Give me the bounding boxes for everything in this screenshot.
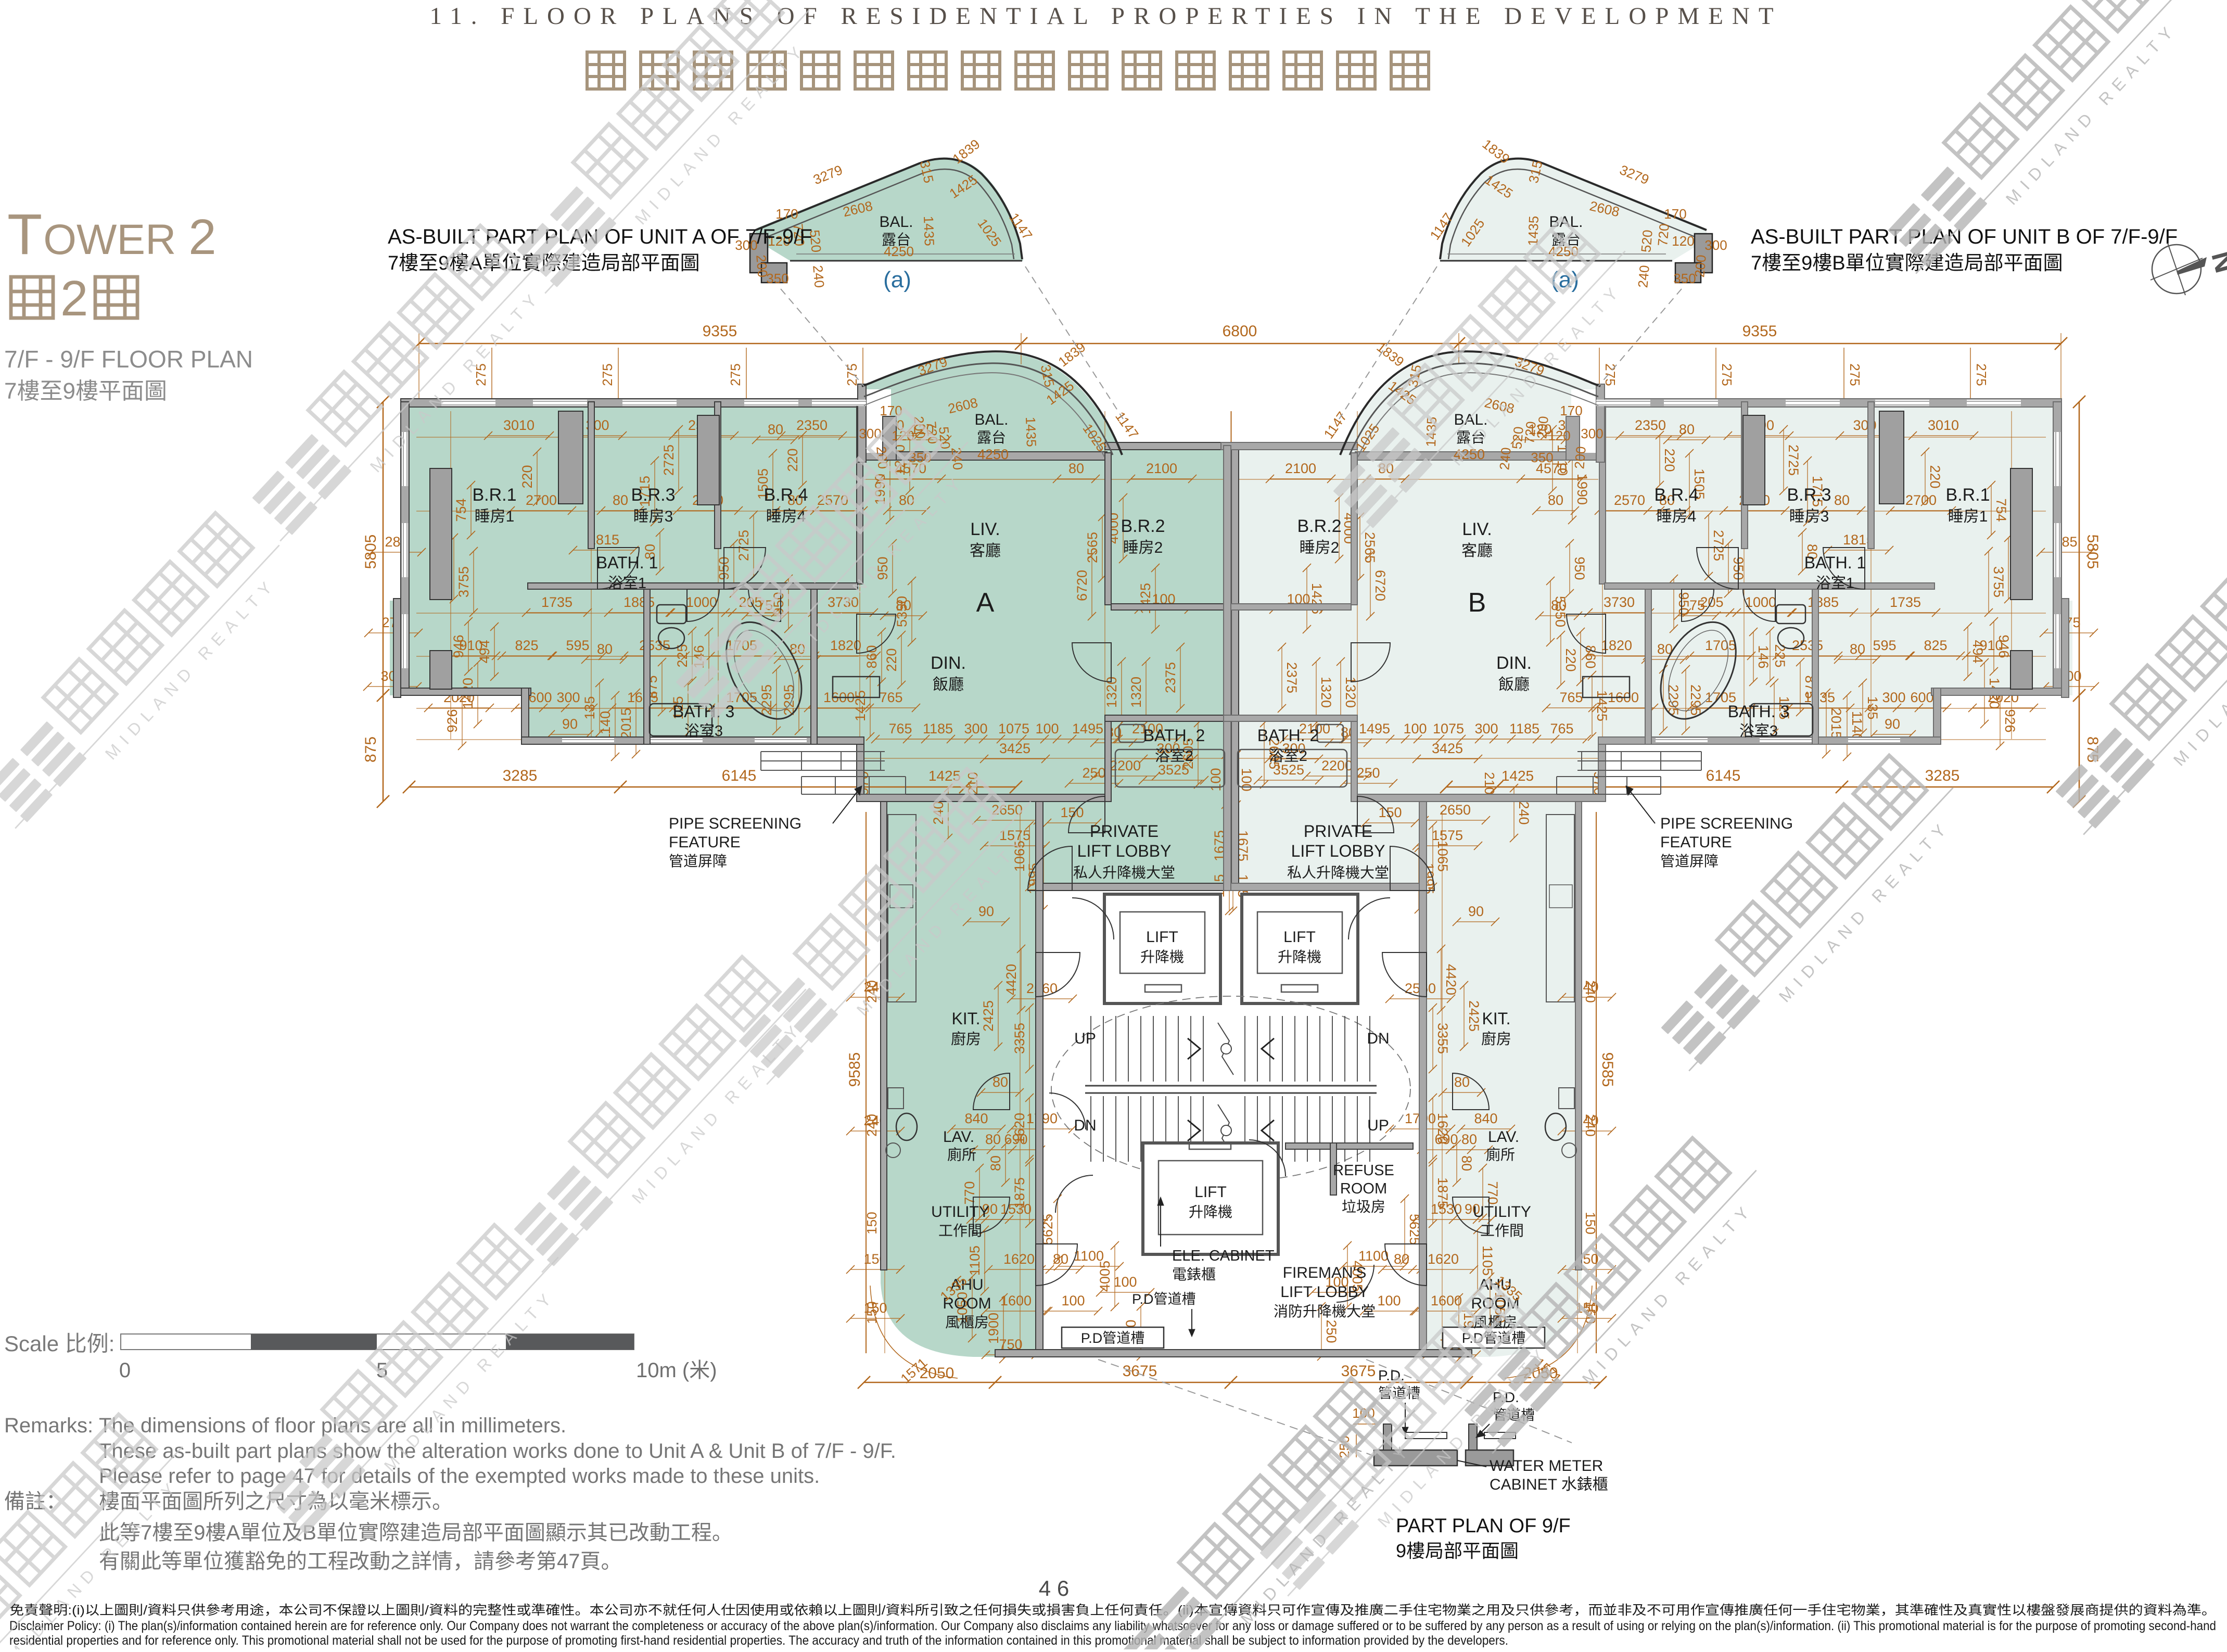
svg-text:950: 950 [1572, 556, 1587, 580]
svg-text:860: 860 [864, 645, 880, 668]
svg-text:有關此等單位獲豁免的工程改動之詳情，請參考第47頁。: 有關此等單位獲豁免的工程改動之詳情，請參考第47頁。 [99, 1550, 622, 1573]
svg-text:3675: 3675 [1341, 1363, 1376, 1380]
svg-text:3285: 3285 [1925, 767, 1960, 784]
svg-text:1620: 1620 [1003, 1251, 1035, 1267]
svg-text:100: 100 [1403, 721, 1427, 736]
svg-text:220: 220 [519, 465, 535, 488]
svg-text:275: 275 [728, 363, 743, 386]
svg-text:275: 275 [1719, 363, 1735, 386]
svg-text:睡房3: 睡房3 [1789, 508, 1829, 525]
svg-text:睡房2: 睡房2 [1123, 539, 1163, 556]
svg-text:REFUSE: REFUSE [1333, 1162, 1394, 1179]
svg-text:工作間: 工作間 [938, 1223, 982, 1239]
svg-text:睡房2: 睡房2 [1300, 539, 1340, 556]
svg-text:1000: 1000 [1745, 594, 1776, 610]
svg-text:1495: 1495 [1072, 721, 1103, 736]
svg-text:875: 875 [362, 736, 379, 763]
svg-text:300: 300 [556, 690, 580, 705]
svg-text:升降機: 升降機 [1278, 949, 1321, 965]
svg-text:2565: 2565 [1085, 532, 1100, 563]
svg-text:170: 170 [775, 206, 798, 222]
svg-text:275: 275 [1974, 363, 1989, 386]
svg-text:9355: 9355 [1742, 323, 1777, 340]
svg-text:240: 240 [948, 447, 966, 471]
svg-text:2565: 2565 [1362, 532, 1378, 563]
svg-text:80: 80 [1459, 1155, 1474, 1171]
svg-text:250: 250 [1324, 1319, 1339, 1343]
svg-text:睡房4: 睡房4 [1657, 508, 1697, 525]
svg-text:私人升降機大堂: 私人升降機大堂 [1073, 865, 1175, 881]
svg-text:7/F - 9/F FLOOR PLAN: 7/F - 9/F FLOOR PLAN [4, 346, 253, 373]
svg-text:1600: 1600 [1431, 1293, 1462, 1308]
svg-text:90: 90 [1885, 716, 1900, 732]
svg-text:350: 350 [1531, 450, 1553, 465]
svg-text:2295: 2295 [759, 684, 774, 716]
svg-text:840: 840 [1474, 1111, 1497, 1126]
svg-text:CABINET 水錶櫃: CABINET 水錶櫃 [1490, 1476, 1608, 1493]
svg-text:2: 2 [60, 271, 88, 326]
svg-text:4420: 4420 [1003, 964, 1019, 995]
svg-text:1105: 1105 [1480, 1246, 1495, 1276]
svg-text:150: 150 [1583, 1212, 1598, 1234]
svg-text:6720: 6720 [1074, 570, 1090, 601]
svg-text:浴室3: 浴室3 [1739, 722, 1778, 740]
svg-text:FEATURE: FEATURE [669, 834, 741, 851]
svg-text:690: 690 [1004, 1132, 1027, 1147]
svg-text:1065: 1065 [1435, 841, 1450, 872]
svg-text:240: 240 [1635, 264, 1652, 288]
svg-text:4 6: 4 6 [1039, 1576, 1069, 1600]
svg-text:170: 170 [1664, 206, 1686, 222]
svg-text:ROOM: ROOM [1340, 1180, 1387, 1197]
svg-text:300: 300 [1882, 690, 1905, 705]
svg-text:720: 720 [1655, 223, 1672, 247]
svg-text:300: 300 [1581, 426, 1603, 441]
svg-text:管道屏障: 管道屏障 [669, 853, 727, 869]
svg-text:1425: 1425 [1501, 768, 1534, 784]
svg-text:80: 80 [1053, 1251, 1068, 1267]
svg-text:0: 0 [119, 1359, 131, 1382]
svg-text:免責聲明:(i)以上圖則/資料只供參考用途，本公司不保證以上: 免責聲明:(i)以上圖則/資料只供參考用途，本公司不保證以上圖則/資料的完整性或… [9, 1603, 2216, 1618]
svg-text:LIFT LOBBY: LIFT LOBBY [1280, 1284, 1369, 1301]
svg-text:2100: 2100 [1146, 461, 1177, 476]
svg-text:300: 300 [964, 721, 987, 736]
svg-text:2725: 2725 [1786, 444, 1801, 476]
svg-text:210: 210 [1482, 772, 1497, 794]
svg-text:1435: 1435 [1023, 416, 1039, 447]
svg-text:睡房3: 睡房3 [633, 508, 673, 525]
svg-text:2425: 2425 [1466, 1000, 1482, 1032]
svg-text:80: 80 [1548, 492, 1563, 508]
svg-text:595: 595 [1873, 638, 1896, 653]
svg-text:PRIVATE: PRIVATE [1090, 822, 1159, 841]
svg-text:5350: 5350 [1552, 596, 1568, 627]
svg-text:FEATURE: FEATURE [1660, 834, 1732, 851]
svg-text:LIFT LOBBY: LIFT LOBBY [1291, 842, 1385, 860]
svg-text:浴室2: 浴室2 [1269, 747, 1307, 765]
svg-text:B.R.3: B.R.3 [1787, 485, 1831, 505]
svg-text:1320: 1320 [1318, 677, 1334, 708]
svg-text:2725: 2725 [661, 444, 677, 476]
svg-text:100: 100 [1113, 1274, 1137, 1290]
svg-text:754: 754 [1993, 498, 2009, 522]
svg-text:B.R.4: B.R.4 [763, 485, 808, 505]
svg-text:2725: 2725 [1711, 530, 1726, 561]
svg-text:UTILITY: UTILITY [1473, 1203, 1531, 1221]
svg-text:90: 90 [562, 716, 578, 732]
svg-text:DN: DN [1367, 1030, 1389, 1047]
svg-text:1075: 1075 [998, 721, 1029, 736]
svg-text:1105: 1105 [967, 1246, 983, 1276]
svg-text:(a): (a) [883, 267, 911, 293]
svg-text:200: 200 [1571, 446, 1589, 469]
svg-text:BATH. 1: BATH. 1 [596, 553, 658, 572]
svg-text:220: 220 [1927, 465, 1943, 488]
svg-text:UTILITY: UTILITY [931, 1203, 989, 1221]
svg-text:BATH. 3: BATH. 3 [1728, 702, 1790, 721]
svg-text:廁所: 廁所 [1486, 1147, 1515, 1163]
svg-text:1735: 1735 [541, 594, 572, 610]
svg-text:80: 80 [597, 641, 613, 657]
svg-text:765: 765 [888, 721, 912, 736]
svg-text:220: 220 [1563, 648, 1579, 671]
svg-text:LAV.: LAV. [1488, 1128, 1519, 1146]
svg-text:BAL.: BAL. [974, 411, 1008, 428]
svg-text:Remarks:: Remarks: [4, 1414, 93, 1437]
svg-text:100: 100 [1377, 1293, 1401, 1308]
svg-text:3675: 3675 [1123, 1363, 1157, 1380]
svg-text:KIT.: KIT. [1482, 1009, 1510, 1028]
svg-text:250: 250 [1082, 765, 1105, 781]
svg-text:LIFT: LIFT [1283, 929, 1316, 946]
svg-text:私人升降機大堂: 私人升降機大堂 [1287, 865, 1389, 881]
svg-text:DIN.: DIN. [931, 653, 966, 673]
svg-text:770: 770 [1485, 1181, 1500, 1204]
svg-text:1620: 1620 [1428, 1251, 1459, 1267]
svg-text:UP: UP [1074, 1030, 1096, 1047]
svg-text:100: 100 [1035, 721, 1059, 736]
svg-text:494: 494 [477, 640, 492, 663]
svg-text:residential properties and for: residential properties and for reference… [9, 1633, 1508, 1648]
svg-text:250: 250 [1356, 765, 1380, 781]
svg-text:B.R.2: B.R.2 [1297, 516, 1341, 536]
svg-text:350: 350 [1673, 271, 1696, 286]
svg-text:120: 120 [1672, 233, 1694, 249]
svg-text:600: 600 [528, 690, 552, 705]
svg-text:DIN.: DIN. [1496, 653, 1532, 673]
svg-text:1705: 1705 [1705, 638, 1736, 653]
svg-text:100: 100 [1208, 768, 1224, 791]
svg-text:BATH. 2: BATH. 2 [1257, 726, 1319, 745]
svg-text:3425: 3425 [999, 741, 1030, 756]
svg-text:ELE. CABINET: ELE. CABINET [1172, 1248, 1275, 1264]
svg-text:2425: 2425 [981, 1000, 996, 1032]
svg-text:AS-BUILT PART PLAN OF UNIT B O: AS-BUILT PART PLAN OF UNIT B OF 7/F-9/F [1751, 225, 2178, 248]
svg-text:690: 690 [1434, 1132, 1458, 1147]
svg-text:These as-built part plans show: These as-built part plans show the alter… [99, 1440, 896, 1463]
svg-text:765: 765 [1559, 690, 1583, 705]
svg-text:1185: 1185 [1509, 721, 1539, 736]
svg-text:240: 240 [810, 264, 828, 288]
svg-text:350: 350 [766, 271, 788, 286]
svg-text:浴室1: 浴室1 [608, 575, 646, 592]
svg-text:275: 275 [1602, 363, 1618, 386]
svg-text:240: 240 [1496, 447, 1514, 471]
svg-text:10m (米): 10m (米) [636, 1359, 717, 1382]
svg-text:BATH. 1: BATH. 1 [1804, 553, 1866, 572]
svg-text:LIFT: LIFT [1194, 1184, 1227, 1201]
svg-text:6145: 6145 [722, 767, 757, 784]
svg-text:P.D管道槽: P.D管道槽 [1132, 1291, 1196, 1307]
svg-text:2375: 2375 [1163, 662, 1178, 693]
svg-text:B: B [1468, 588, 1486, 618]
svg-text:2375: 2375 [1284, 662, 1300, 693]
svg-text:工作間: 工作間 [1480, 1223, 1524, 1239]
svg-text:1185: 1185 [923, 721, 953, 736]
svg-text:2650: 2650 [1440, 802, 1471, 818]
svg-text:4250: 4250 [977, 447, 1009, 462]
svg-text:275: 275 [1847, 363, 1863, 386]
svg-text:275: 275 [600, 363, 615, 386]
svg-text:浴室2: 浴室2 [1155, 747, 1193, 765]
svg-text:90: 90 [1468, 904, 1484, 919]
svg-text:770: 770 [962, 1181, 977, 1204]
svg-text:520: 520 [1509, 426, 1526, 450]
svg-text:80: 80 [768, 422, 783, 437]
svg-text:150: 150 [1378, 805, 1402, 820]
svg-text:1435: 1435 [921, 215, 937, 246]
svg-text:升降機: 升降機 [1140, 949, 1184, 965]
svg-text:7樓至9樓平面圖: 7樓至9樓平面圖 [4, 378, 167, 404]
svg-text:UP: UP [1367, 1117, 1389, 1134]
svg-text:1600: 1600 [1000, 1293, 1032, 1308]
svg-text:A: A [976, 588, 995, 618]
svg-text:80: 80 [1834, 492, 1850, 508]
svg-text:3355: 3355 [1435, 1023, 1450, 1054]
svg-text:客廳: 客廳 [1461, 542, 1493, 560]
svg-text:Scale 比例:: Scale 比例: [4, 1331, 114, 1356]
svg-text:220: 220 [1662, 448, 1677, 472]
svg-text:6145: 6145 [1706, 767, 1741, 784]
svg-text:1075: 1075 [1433, 721, 1464, 736]
svg-text:5805: 5805 [2084, 535, 2101, 569]
svg-text:150: 150 [1060, 805, 1084, 820]
svg-text:睡房1: 睡房1 [1948, 508, 1988, 525]
svg-text:廚房: 廚房 [1481, 1031, 1511, 1048]
svg-text:825: 825 [1924, 638, 1947, 653]
svg-text:80: 80 [613, 492, 628, 508]
svg-text:露台: 露台 [977, 429, 1006, 446]
svg-text:LIV.: LIV. [1462, 519, 1492, 539]
svg-text:B.R.1: B.R.1 [472, 485, 516, 505]
svg-text:2015: 2015 [1828, 708, 1844, 739]
svg-text:B.R.3: B.R.3 [631, 485, 675, 505]
svg-text:7樓至9樓B單位實際建造局部平面圖: 7樓至9樓B單位實際建造局部平面圖 [1751, 252, 2063, 274]
svg-text:494: 494 [1970, 640, 1986, 663]
svg-text:80: 80 [1850, 641, 1865, 657]
svg-text:240: 240 [1516, 801, 1532, 824]
svg-text:FIREMAN'S: FIREMAN'S [1283, 1264, 1367, 1281]
svg-text:765: 765 [1550, 721, 1573, 736]
svg-text:B.R.4: B.R.4 [1654, 485, 1698, 505]
svg-text:B.R.1: B.R.1 [1945, 485, 1990, 505]
svg-text:150: 150 [863, 1300, 887, 1316]
svg-text:2200: 2200 [1110, 758, 1141, 773]
svg-text:11. FLOOR PLANS OF RESIDENTIAL: 11. FLOOR PLANS OF RESIDENTIAL PROPERTIE… [429, 3, 1782, 30]
svg-text:廚房: 廚房 [951, 1031, 981, 1048]
svg-text:BAL.: BAL. [879, 213, 913, 231]
svg-text:80: 80 [1461, 1132, 1477, 1147]
svg-text:3730: 3730 [1604, 594, 1635, 610]
svg-text:3755: 3755 [456, 566, 472, 598]
svg-text:840: 840 [964, 1111, 988, 1126]
svg-text:600: 600 [1910, 690, 1933, 705]
svg-text:170: 170 [1560, 403, 1582, 418]
svg-text:220: 220 [884, 648, 899, 671]
svg-text:950: 950 [1676, 592, 1691, 615]
svg-text:80: 80 [985, 1132, 1001, 1147]
svg-text:1425: 1425 [852, 690, 868, 721]
svg-text:PIPE SCREENING: PIPE SCREENING [669, 815, 801, 832]
svg-text:KIT.: KIT. [951, 1009, 980, 1028]
svg-text:80: 80 [1394, 1251, 1409, 1267]
svg-text:825: 825 [515, 638, 538, 653]
svg-text:5350: 5350 [894, 596, 910, 627]
svg-text:2725: 2725 [736, 530, 752, 561]
svg-text:9355: 9355 [703, 323, 737, 340]
svg-text:220: 220 [785, 448, 800, 472]
svg-text:90: 90 [978, 904, 994, 919]
svg-text:飯廳: 飯廳 [1498, 676, 1530, 693]
svg-text:廁所: 廁所 [947, 1147, 976, 1163]
svg-text:垃圾房: 垃圾房 [1342, 1199, 1385, 1215]
svg-text:595: 595 [566, 638, 589, 653]
svg-text:飯廳: 飯廳 [933, 676, 964, 693]
svg-text:4420: 4420 [1443, 964, 1459, 995]
svg-text:150: 150 [864, 1212, 880, 1234]
svg-text:9樓局部平面圖: 9樓局部平面圖 [1396, 1540, 1519, 1561]
svg-text:LAV.: LAV. [943, 1128, 974, 1146]
svg-text:2350: 2350 [796, 417, 828, 433]
svg-text:4005: 4005 [1097, 1261, 1113, 1292]
svg-text:275: 275 [844, 363, 860, 386]
svg-text:客廳: 客廳 [970, 542, 1001, 560]
svg-text:2295: 2295 [1688, 684, 1703, 716]
svg-text:6800: 6800 [1223, 323, 1257, 340]
svg-text:3755: 3755 [1991, 566, 2006, 598]
svg-text:300: 300 [1704, 237, 1727, 253]
svg-text:1735: 1735 [1890, 594, 1921, 610]
svg-text:P.D管道槽: P.D管道槽 [1081, 1330, 1145, 1346]
svg-text:PIPE SCREENING: PIPE SCREENING [1660, 815, 1793, 832]
svg-text:80: 80 [899, 492, 914, 508]
svg-text:2100: 2100 [1285, 461, 1316, 476]
svg-text:1495: 1495 [1359, 721, 1390, 736]
svg-text:露台: 露台 [882, 232, 911, 248]
svg-text:9585: 9585 [1599, 1052, 1616, 1087]
svg-text:Disclaimer Policy: (i) The pla: Disclaimer Policy: (i) The plan(s)/infor… [9, 1619, 2216, 1633]
svg-text:9585: 9585 [846, 1052, 863, 1087]
svg-text:B.R.2: B.R.2 [1121, 516, 1165, 536]
svg-text:此等7樓至9樓A單位及B單位實際建造局部平面圖顯示其已改動工: 此等7樓至9樓A單位及B單位實際建造局部平面圖顯示其已改動工程。 [99, 1521, 733, 1544]
svg-text:PART PLAN OF 9/F: PART PLAN OF 9/F [1396, 1515, 1571, 1537]
svg-text:消防升降機大堂: 消防升降機大堂 [1274, 1303, 1376, 1319]
svg-text:2350: 2350 [1635, 417, 1666, 433]
svg-text:1320: 1320 [1128, 677, 1144, 708]
svg-text:300: 300 [1474, 721, 1498, 736]
svg-text:LIFT LOBBY: LIFT LOBBY [1077, 842, 1172, 860]
svg-text:風櫃房: 風櫃房 [945, 1314, 989, 1330]
svg-text:5805: 5805 [362, 535, 379, 569]
svg-text:LIFT: LIFT [1146, 929, 1178, 946]
svg-text:WATER METER: WATER METER [1490, 1457, 1603, 1475]
svg-text:3285: 3285 [503, 767, 538, 784]
svg-text:120: 120 [1548, 428, 1570, 443]
svg-text:6720: 6720 [1372, 570, 1388, 601]
svg-text:765: 765 [879, 690, 902, 705]
svg-text:升降機: 升降機 [1189, 1204, 1232, 1220]
svg-text:100: 100 [1239, 768, 1254, 791]
svg-text:浴室1: 浴室1 [1816, 575, 1854, 592]
svg-text:2700: 2700 [526, 492, 557, 508]
svg-text:520: 520 [1638, 229, 1656, 253]
svg-text:電錶櫃: 電錶櫃 [1172, 1266, 1216, 1282]
svg-text:3010: 3010 [503, 417, 535, 433]
svg-text:PRIVATE: PRIVATE [1304, 822, 1372, 841]
svg-text:睡房1: 睡房1 [475, 508, 515, 525]
svg-text:146: 146 [1755, 645, 1771, 668]
svg-text:管道屏障: 管道屏障 [1660, 853, 1719, 869]
svg-text:1000: 1000 [686, 594, 717, 610]
svg-text:3010: 3010 [1928, 417, 1959, 433]
svg-text:1425: 1425 [1594, 690, 1610, 721]
svg-text:80: 80 [988, 1155, 1003, 1171]
svg-text:2570: 2570 [1614, 492, 1645, 508]
svg-text:3355: 3355 [1012, 1023, 1027, 1054]
svg-text:80: 80 [1068, 461, 1084, 476]
svg-text:926: 926 [2002, 709, 2018, 732]
svg-text:2200: 2200 [1321, 758, 1353, 773]
svg-text:100: 100 [1061, 1293, 1085, 1308]
svg-text:BATH. 2: BATH. 2 [1143, 726, 1205, 745]
svg-text:2015: 2015 [618, 708, 634, 739]
svg-text:754: 754 [453, 498, 469, 522]
svg-text:926: 926 [444, 709, 460, 732]
svg-text:Please refer to page 47 for de: Please refer to page 47 for details of t… [99, 1465, 820, 1488]
svg-text:LIV.: LIV. [970, 519, 1000, 539]
